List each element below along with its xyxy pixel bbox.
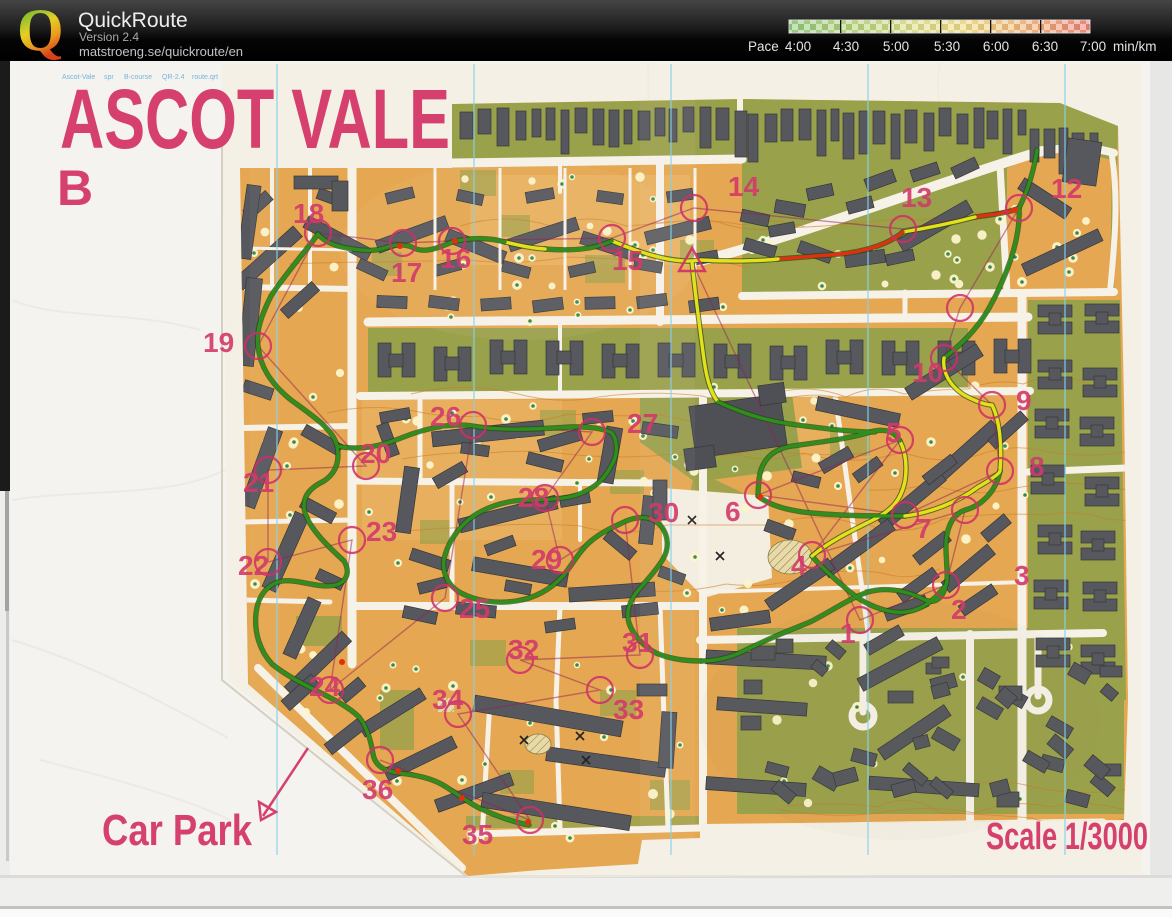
svg-text:1: 1 bbox=[840, 618, 856, 649]
svg-text:14: 14 bbox=[728, 171, 760, 202]
svg-text:19: 19 bbox=[203, 327, 234, 358]
svg-text:6:00: 6:00 bbox=[983, 39, 1009, 54]
svg-text:20: 20 bbox=[360, 438, 391, 469]
svg-text:4:30: 4:30 bbox=[833, 39, 859, 54]
svg-text:22: 22 bbox=[238, 550, 269, 581]
svg-text:15: 15 bbox=[612, 245, 643, 276]
svg-text:25: 25 bbox=[459, 593, 490, 624]
svg-text:Scale 1/3000: Scale 1/3000 bbox=[986, 816, 1148, 858]
svg-text:4: 4 bbox=[791, 550, 807, 581]
svg-text:Version 2.4: Version 2.4 bbox=[79, 30, 139, 44]
svg-text:12: 12 bbox=[1051, 173, 1082, 204]
svg-text:2: 2 bbox=[951, 594, 967, 625]
svg-text:17: 17 bbox=[391, 257, 422, 288]
svg-text:6: 6 bbox=[725, 496, 741, 527]
svg-text:7: 7 bbox=[916, 513, 932, 544]
svg-text:min/km: min/km bbox=[1113, 39, 1157, 54]
svg-text:29: 29 bbox=[531, 544, 562, 575]
svg-text:5: 5 bbox=[886, 417, 902, 448]
svg-text:18: 18 bbox=[293, 198, 324, 229]
svg-text:28: 28 bbox=[518, 482, 549, 513]
svg-text:33: 33 bbox=[613, 694, 644, 725]
svg-text:9: 9 bbox=[1016, 385, 1032, 416]
svg-text:35: 35 bbox=[462, 819, 493, 850]
svg-text:3: 3 bbox=[1014, 560, 1030, 591]
svg-text:8: 8 bbox=[1029, 451, 1045, 482]
svg-text:7:00: 7:00 bbox=[1080, 39, 1106, 54]
svg-text:Car Park: Car Park bbox=[102, 806, 252, 855]
svg-text:5:00: 5:00 bbox=[883, 39, 909, 54]
svg-text:4:00: 4:00 bbox=[785, 39, 811, 54]
svg-text:13: 13 bbox=[901, 182, 932, 213]
svg-text:16: 16 bbox=[440, 243, 471, 274]
svg-text:23: 23 bbox=[366, 516, 397, 547]
svg-text:Pace: Pace bbox=[748, 39, 779, 54]
svg-text:ASCOT VALE: ASCOT VALE bbox=[60, 72, 450, 166]
svg-text:10: 10 bbox=[912, 357, 943, 388]
svg-text:6:30: 6:30 bbox=[1032, 39, 1058, 54]
svg-text:26: 26 bbox=[430, 401, 461, 432]
svg-text:32: 32 bbox=[508, 634, 539, 665]
svg-text:5:30: 5:30 bbox=[934, 39, 960, 54]
svg-text:Q: Q bbox=[17, 0, 64, 63]
svg-text:34: 34 bbox=[432, 684, 464, 715]
svg-text:27: 27 bbox=[627, 408, 658, 439]
svg-text:B: B bbox=[57, 160, 93, 216]
svg-text:21: 21 bbox=[243, 467, 274, 498]
svg-text:QuickRoute: QuickRoute bbox=[78, 9, 188, 32]
svg-text:31: 31 bbox=[622, 627, 653, 658]
svg-text:30: 30 bbox=[648, 497, 679, 528]
svg-text:36: 36 bbox=[362, 774, 393, 805]
svg-text:24: 24 bbox=[309, 671, 341, 702]
svg-text:matstroeng.se/quickroute/en: matstroeng.se/quickroute/en bbox=[79, 44, 243, 59]
